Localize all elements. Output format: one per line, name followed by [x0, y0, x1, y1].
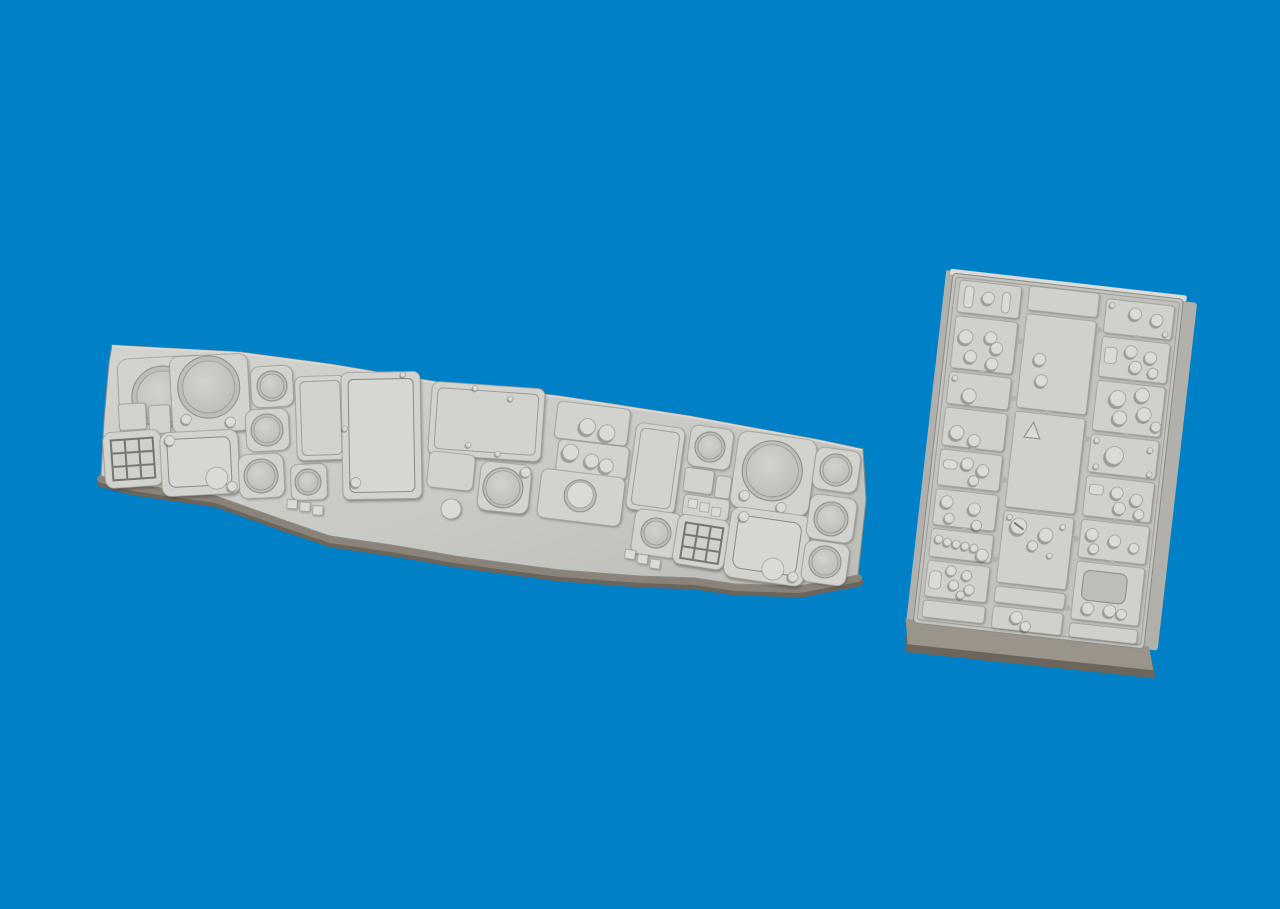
sub-panel — [996, 510, 1074, 589]
gauge-round-small — [686, 424, 734, 471]
gauge-round-small — [245, 408, 290, 452]
display-wide — [428, 381, 546, 462]
keypad — [102, 429, 164, 489]
sub-panel — [1087, 434, 1159, 480]
slot — [943, 459, 958, 470]
sub-panel-tall — [1016, 314, 1096, 415]
gauge-round-medium — [477, 461, 533, 515]
display-screen — [159, 429, 240, 497]
gauge-round-small — [805, 493, 858, 544]
blank-plate-small — [426, 451, 476, 492]
gauge-round-small — [238, 453, 285, 499]
panel-with-knob — [536, 468, 625, 527]
sub-panel — [946, 371, 1011, 410]
slot — [1104, 347, 1118, 364]
render-canvas — [0, 0, 1280, 909]
gauge-round-small — [250, 365, 294, 408]
sub-panel — [1092, 380, 1165, 437]
sub-panel — [937, 449, 1003, 492]
gauge-round-small — [800, 539, 850, 587]
display-screen — [722, 506, 812, 588]
mfd-screen — [340, 371, 422, 499]
keypad — [671, 513, 730, 571]
gauge-round-large — [729, 430, 818, 518]
gauge-round-small — [290, 463, 327, 500]
gauge-round-small — [811, 446, 861, 494]
round-button — [441, 499, 461, 519]
scene — [0, 0, 1280, 909]
center-console-part — [902, 268, 1199, 680]
blank-plate-tall — [295, 375, 348, 461]
gauge-round-large — [169, 353, 251, 434]
sub-panel — [957, 280, 1022, 319]
sub-panel — [1078, 519, 1150, 564]
sub-panel — [1103, 299, 1174, 340]
slot — [1089, 484, 1104, 496]
sub-panel — [1082, 475, 1154, 523]
sub-panel-tall — [1005, 411, 1085, 514]
sub-panel — [950, 316, 1018, 375]
recessed-window — [1081, 570, 1128, 605]
sub-panel — [1098, 336, 1170, 383]
sub-panel — [941, 407, 1007, 452]
sub-panel — [924, 560, 990, 604]
slot — [928, 570, 942, 589]
sub-panel — [1071, 561, 1145, 626]
